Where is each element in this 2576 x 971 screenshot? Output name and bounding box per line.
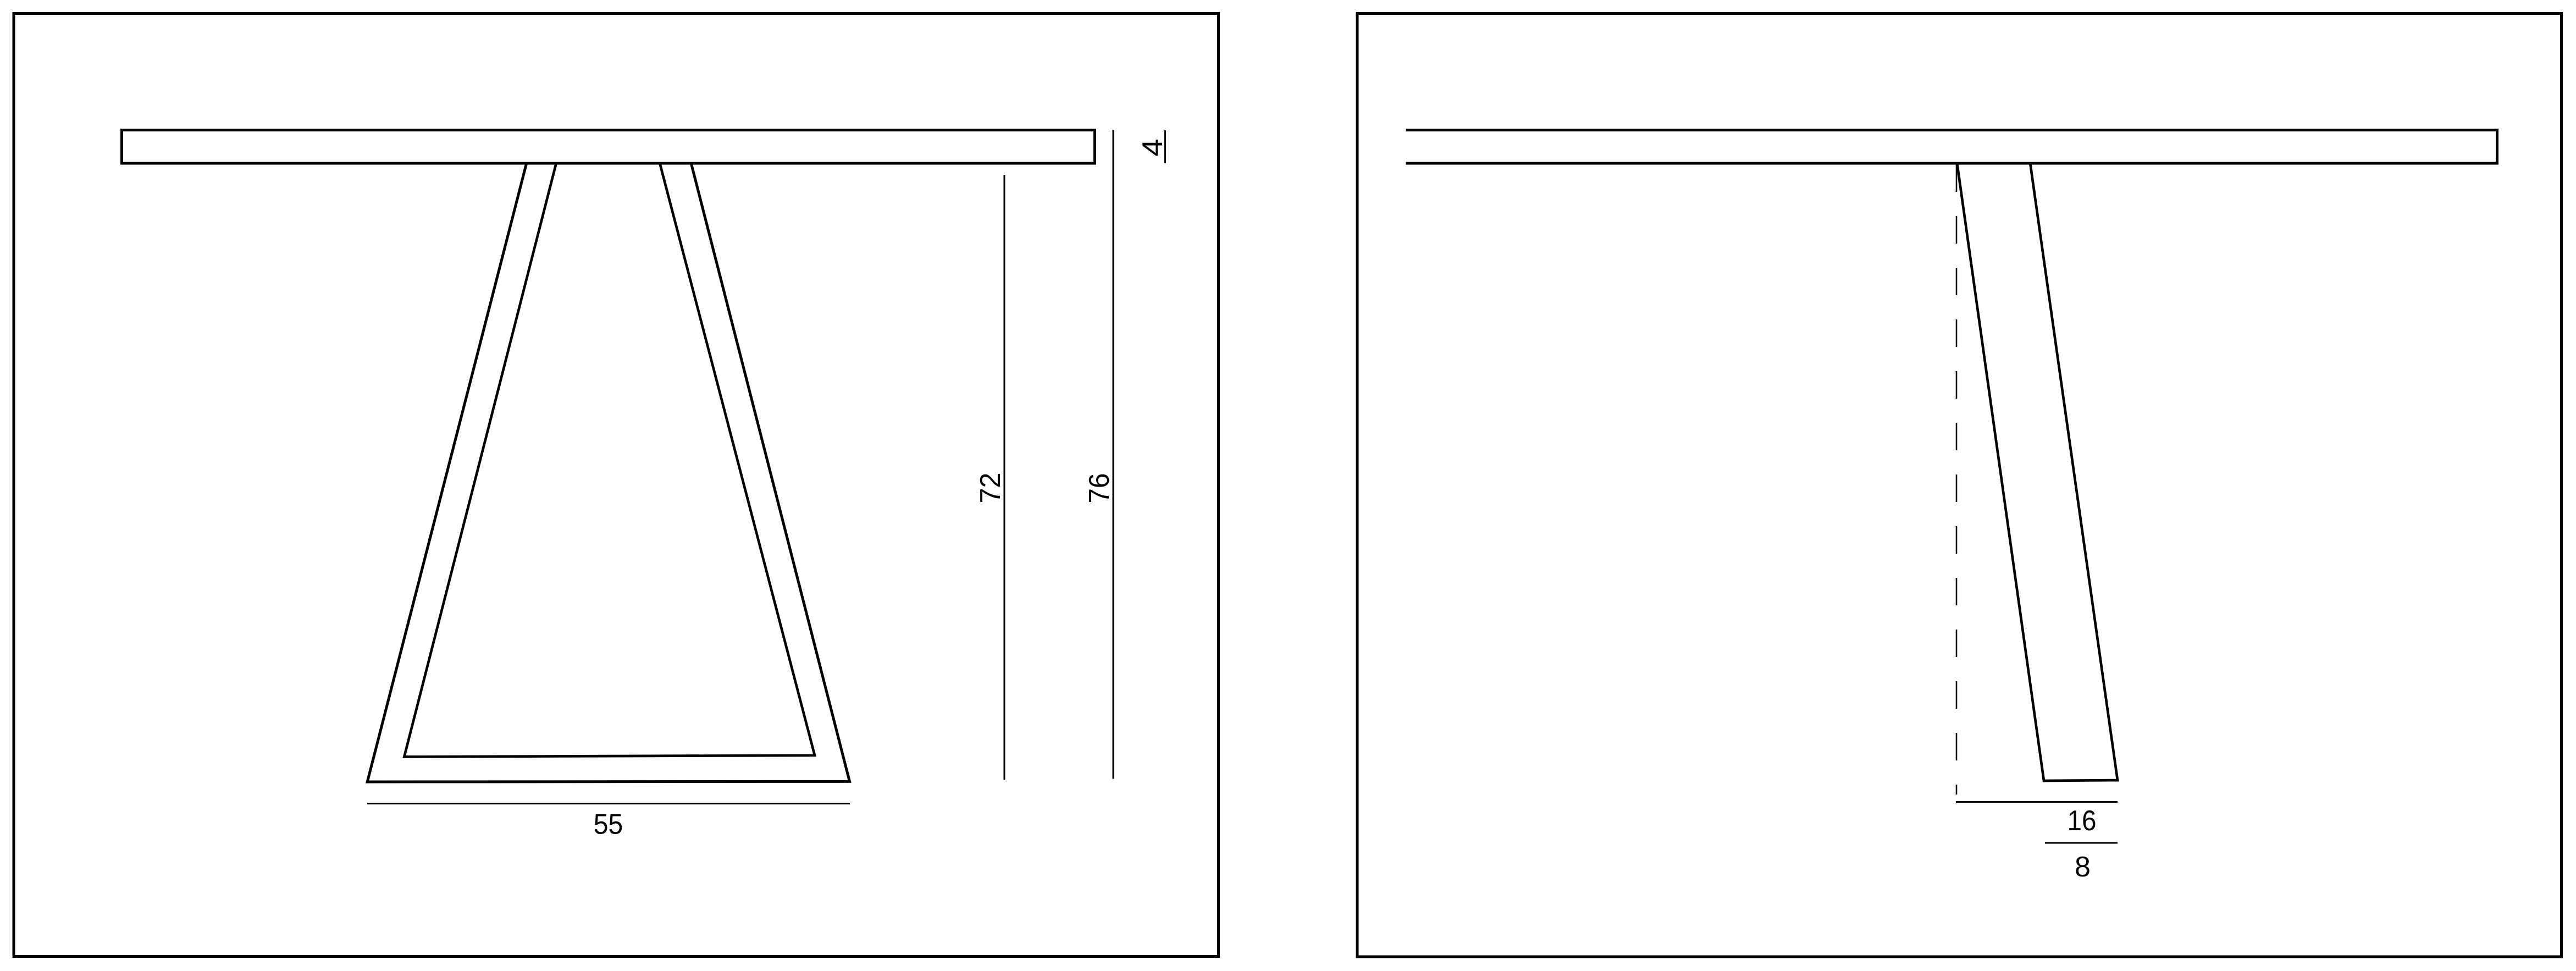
svg-text:8: 8 xyxy=(2075,851,2091,883)
svg-text:4: 4 xyxy=(1137,139,1169,157)
svg-text:76: 76 xyxy=(1084,473,1115,504)
svg-text:16: 16 xyxy=(2068,805,2097,837)
svg-text:72: 72 xyxy=(975,473,1007,504)
svg-text:55: 55 xyxy=(594,809,623,841)
